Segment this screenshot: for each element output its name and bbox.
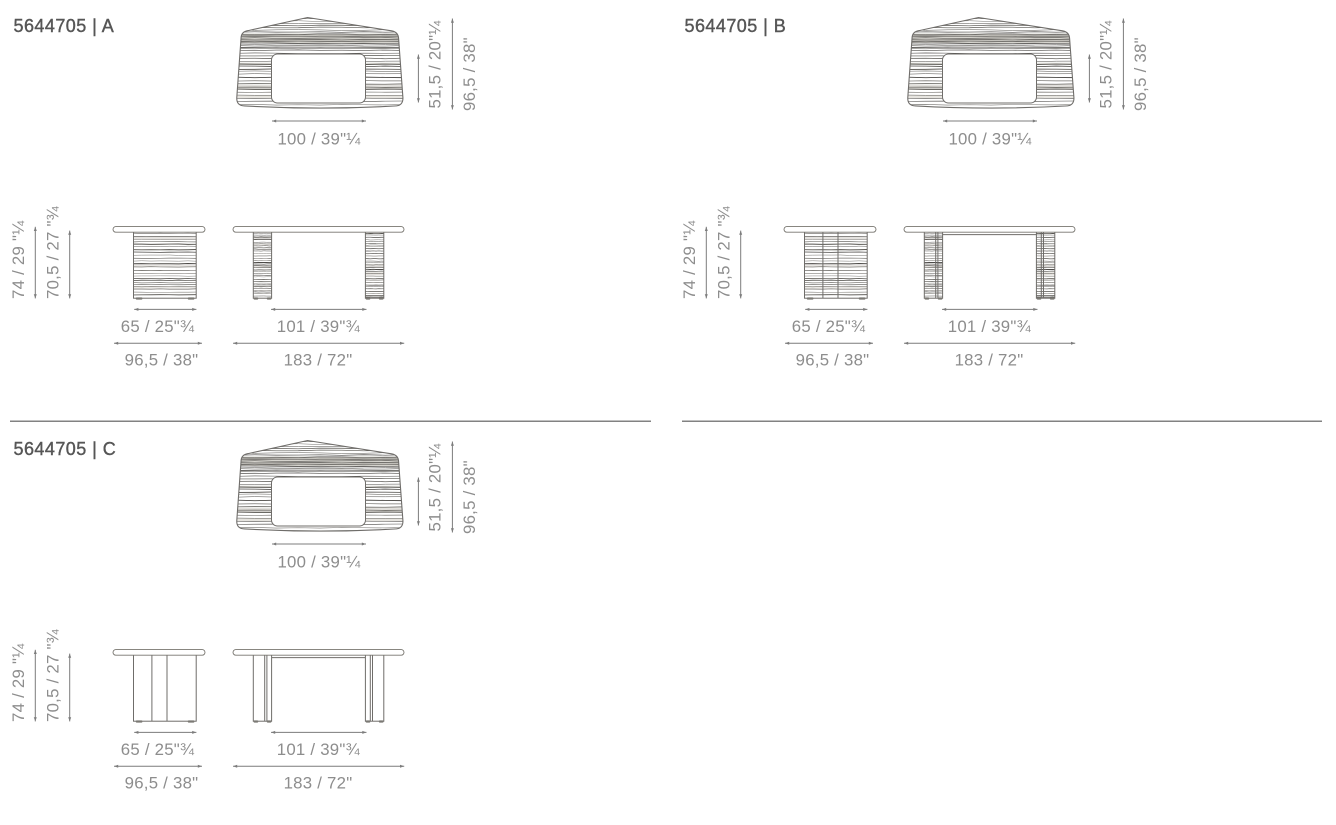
svg-text:51,5 / 20"¼: 51,5 / 20"¼: [425, 443, 444, 532]
svg-text:183 / 72": 183 / 72": [284, 351, 353, 370]
svg-text:65 / 25"¾: 65 / 25"¾: [121, 740, 195, 759]
svg-text:96,5 / 38": 96,5 / 38": [125, 351, 199, 370]
svg-text:96,5 / 38": 96,5 / 38": [125, 774, 199, 793]
svg-text:70,5 / 27 "¾: 70,5 / 27 "¾: [44, 628, 63, 722]
svg-text:101 / 39"¾: 101 / 39"¾: [277, 740, 361, 759]
svg-text:96,5 / 38": 96,5 / 38": [460, 460, 479, 534]
svg-text:5644705 | B: 5644705 | B: [685, 16, 787, 36]
svg-text:96,5 / 38": 96,5 / 38": [796, 351, 870, 370]
svg-text:100 / 39"¼: 100 / 39"¼: [948, 129, 1032, 148]
svg-text:65 / 25"¾: 65 / 25"¾: [792, 317, 866, 336]
svg-text:100 / 39"¼: 100 / 39"¼: [277, 552, 361, 571]
svg-text:70,5 / 27 "¾: 70,5 / 27 "¾: [715, 205, 734, 299]
svg-text:51,5 / 20"¼: 51,5 / 20"¼: [425, 20, 444, 109]
svg-text:51,5 / 20"¼: 51,5 / 20"¼: [1096, 20, 1115, 109]
svg-text:5644705 | C: 5644705 | C: [14, 439, 117, 459]
svg-text:96,5 / 38": 96,5 / 38": [460, 37, 479, 111]
svg-text:183 / 72": 183 / 72": [955, 351, 1024, 370]
svg-text:5644705 | A: 5644705 | A: [14, 16, 115, 36]
svg-text:100 / 39"¼: 100 / 39"¼: [277, 129, 361, 148]
svg-text:74 / 29 "¼: 74 / 29 "¼: [9, 643, 28, 722]
svg-text:70,5 / 27 "¾: 70,5 / 27 "¾: [44, 205, 63, 299]
svg-text:183 / 72": 183 / 72": [284, 774, 353, 793]
svg-text:101 / 39"¾: 101 / 39"¾: [277, 317, 361, 336]
svg-text:96,5 / 38": 96,5 / 38": [1131, 37, 1150, 111]
svg-text:101 / 39"¾: 101 / 39"¾: [948, 317, 1032, 336]
svg-text:74 / 29 "¼: 74 / 29 "¼: [9, 220, 28, 299]
svg-text:65 / 25"¾: 65 / 25"¾: [121, 317, 195, 336]
svg-text:74 / 29 "¼: 74 / 29 "¼: [680, 220, 699, 299]
